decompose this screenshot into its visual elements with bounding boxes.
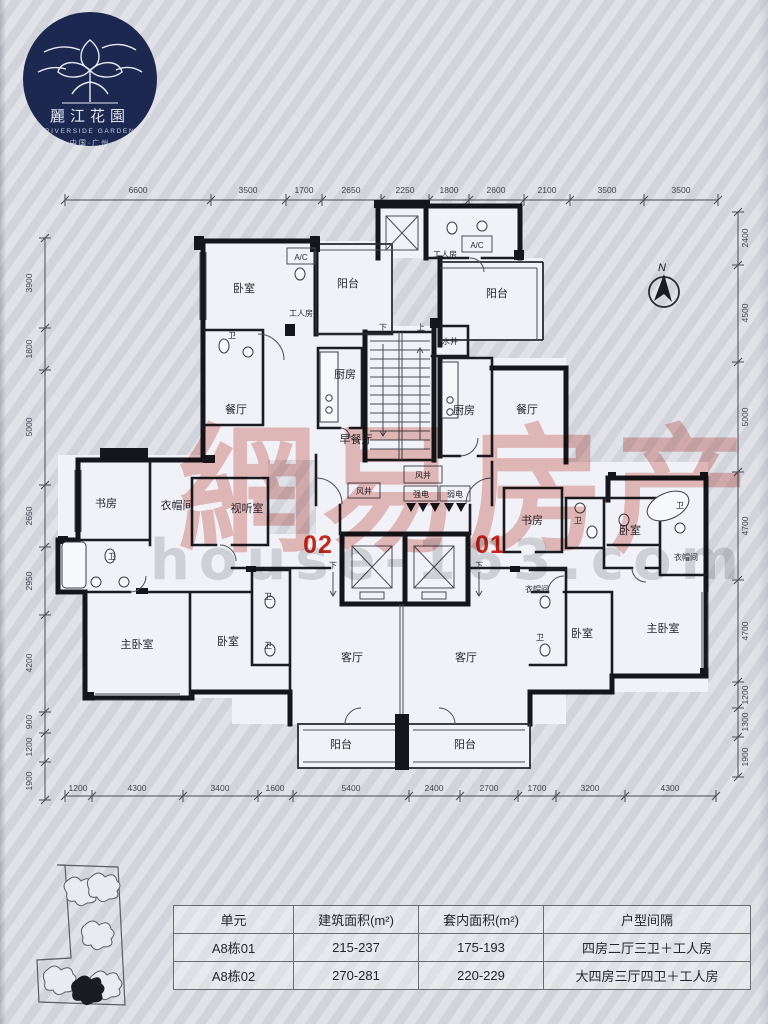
room-label-balcony: 阳台	[337, 276, 359, 290]
room-label-kitchen: 厨房	[453, 404, 475, 417]
cell-unit: A8栋02	[174, 962, 294, 990]
svg-text:4700: 4700	[740, 621, 750, 640]
room-label-dining: 餐厅	[516, 402, 538, 416]
room-label-bath: 卫	[676, 501, 684, 510]
svg-text:2100: 2100	[538, 185, 557, 195]
room-label-balcony: 阳台	[486, 286, 508, 300]
spec-table-header-row: 单元 建筑面积(m²) 套内面积(m²) 户型间隔	[174, 906, 751, 934]
unit-number-01: 01	[475, 531, 505, 559]
room-label-bath: 卫	[536, 633, 544, 642]
col-header-inner-area: 套内面积(m²)	[419, 906, 544, 934]
room-label-bath: 卫	[264, 592, 272, 601]
room-label-breakfast: 早餐厅	[340, 432, 373, 446]
scanned-floorplan-page: 麗江花園 RIVERSIDE GARDEN 中国·广州	[0, 0, 768, 1024]
cell-built-area: 270-281	[294, 962, 419, 990]
air-shaft-label: 风井	[415, 470, 431, 480]
svg-text:3500: 3500	[672, 185, 691, 195]
room-label-ac: A/C	[470, 241, 484, 250]
col-header-unit: 单元	[174, 906, 294, 934]
room-label-master: 主卧室	[121, 637, 154, 651]
svg-text:1900: 1900	[740, 747, 750, 766]
room-label-bedroom: 卧室	[571, 626, 593, 640]
svg-text:3200: 3200	[581, 783, 600, 793]
svg-text:3400: 3400	[211, 783, 230, 793]
svg-text:1700: 1700	[528, 783, 547, 793]
room-label-av: 视听室	[231, 501, 264, 515]
room-label-living: 客厅	[455, 650, 477, 664]
svg-text:1800: 1800	[440, 185, 459, 195]
svg-text:1200: 1200	[740, 685, 750, 704]
svg-text:1700: 1700	[295, 185, 314, 195]
room-label-dining: 餐厅	[225, 402, 247, 416]
stairs-down-label: 下	[379, 323, 387, 332]
room-label-cloak: 衣帽间	[674, 552, 698, 562]
svg-text:4200: 4200	[24, 653, 34, 672]
lobby-down-label: 下	[475, 561, 483, 570]
svg-text:3900: 3900	[24, 273, 34, 292]
svg-text:2950: 2950	[24, 571, 34, 590]
floor-plan: 6600 3500 1700 2650 2250 1800 2600 2100 …	[0, 0, 768, 1024]
room-label-bath: 卫	[108, 552, 116, 561]
svg-text:2650: 2650	[342, 185, 361, 195]
site-plan-highlighted-building	[72, 976, 104, 1005]
room-label-ac: A/C	[294, 253, 308, 262]
svg-text:1200: 1200	[69, 783, 88, 793]
svg-text:2700: 2700	[480, 783, 499, 793]
stairs-up-label: 上	[417, 323, 425, 332]
svg-text:2400: 2400	[740, 228, 750, 247]
col-header-built-area: 建筑面积(m²)	[294, 906, 419, 934]
air-shaft-label: 风井	[356, 486, 372, 496]
svg-text:1600: 1600	[266, 783, 285, 793]
dimension-labels-top: 6600 3500 1700 2650 2250 1800 2600 2100 …	[129, 185, 691, 195]
weak-elec-label: 弱电	[447, 489, 463, 499]
room-label-study: 书房	[521, 514, 543, 527]
lobby-down-label: 下	[329, 561, 337, 570]
cell-inner-area: 220-229	[419, 962, 544, 990]
svg-text:3500: 3500	[239, 185, 258, 195]
room-label-balcony: 阳台	[454, 737, 476, 751]
svg-text:4500: 4500	[740, 303, 750, 322]
room-label-worker: 工人房	[433, 249, 457, 259]
svg-text:1900: 1900	[24, 771, 34, 790]
spec-table-row-01: A8栋01 215-237 175-193 四房二厅三卫＋工人房	[174, 934, 751, 962]
room-label-bedroom: 卧室	[233, 281, 255, 295]
svg-text:3500: 3500	[598, 185, 617, 195]
cell-unit: A8栋01	[174, 934, 294, 962]
svg-text:2600: 2600	[487, 185, 506, 195]
svg-text:4700: 4700	[740, 516, 750, 535]
cell-inner-area: 175-193	[419, 934, 544, 962]
room-label-bath: 卫	[264, 641, 272, 650]
col-header-layout: 户型间隔	[544, 906, 751, 934]
svg-text:1800: 1800	[24, 339, 34, 358]
site-plan	[37, 865, 125, 1005]
svg-text:6600: 6600	[129, 185, 148, 195]
svg-text:900: 900	[24, 715, 34, 729]
svg-text:5000: 5000	[24, 417, 34, 436]
cell-layout: 四房二厅三卫＋工人房	[544, 934, 751, 962]
svg-text:2250: 2250	[396, 185, 415, 195]
svg-text:2650: 2650	[24, 506, 34, 525]
room-label-cloak: 衣帽间	[161, 498, 194, 512]
room-label-living: 客厅	[341, 650, 363, 664]
room-label-kitchen: 厨房	[334, 368, 356, 381]
unit-number-02: 02	[303, 531, 333, 559]
room-label-bath: 卫	[228, 331, 236, 340]
room-label-bath: 卫	[574, 516, 582, 525]
strong-elec-label: 强电	[413, 489, 429, 499]
svg-text:1300: 1300	[740, 712, 750, 731]
svg-text:4300: 4300	[128, 783, 147, 793]
room-label-master: 主卧室	[647, 621, 680, 635]
dimension-labels-bottom: 1200 4300 3400 1600 5400 2400 2700 1700 …	[69, 783, 680, 793]
north-arrow-icon: N	[649, 262, 679, 307]
room-label-bedroom: 卧室	[619, 523, 641, 537]
svg-text:2400: 2400	[425, 783, 444, 793]
cell-built-area: 215-237	[294, 934, 419, 962]
spec-table-row-02: A8栋02 270-281 220-229 大四房三厅四卫＋工人房	[174, 962, 751, 990]
room-label-cloak: 衣帽间	[525, 584, 549, 594]
dimension-labels-right: 2400 4500 5000 4700 4700 1200 1300 1900	[740, 228, 750, 766]
svg-text:1200: 1200	[24, 737, 34, 756]
svg-text:N: N	[658, 262, 666, 274]
room-label-water-shaft: 水井	[442, 336, 458, 346]
spec-table: 单元 建筑面积(m²) 套内面积(m²) 户型间隔 A8栋01 215-237 …	[173, 905, 751, 990]
room-label-balcony: 阳台	[330, 737, 352, 751]
room-label-bedroom: 卧室	[217, 634, 239, 648]
svg-text:4300: 4300	[661, 783, 680, 793]
svg-text:5000: 5000	[740, 407, 750, 426]
svg-text:5400: 5400	[342, 783, 361, 793]
cell-layout: 大四房三厅四卫＋工人房	[544, 962, 751, 990]
room-label-study: 书房	[95, 497, 117, 510]
room-label-worker: 工人房	[289, 308, 313, 318]
dimension-labels-left: 3900 1800 5000 2650 2950 4200 900 1200 1…	[24, 273, 34, 790]
